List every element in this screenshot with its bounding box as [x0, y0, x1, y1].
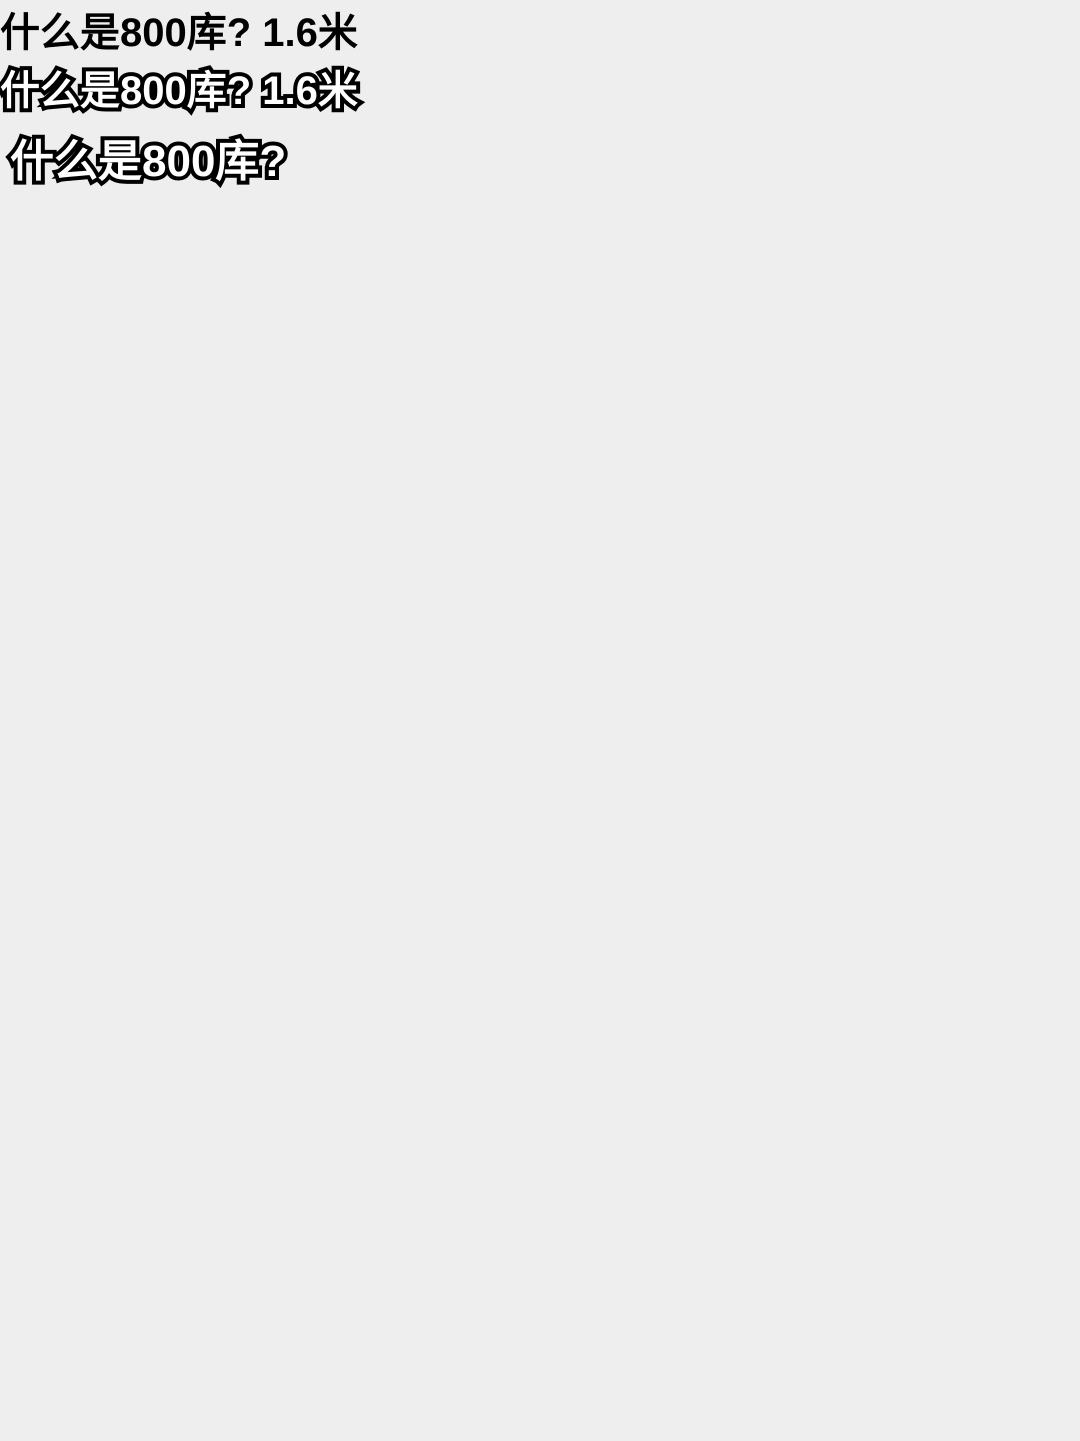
svg-text:什么是800库?: 什么是800库?	[10, 137, 286, 186]
